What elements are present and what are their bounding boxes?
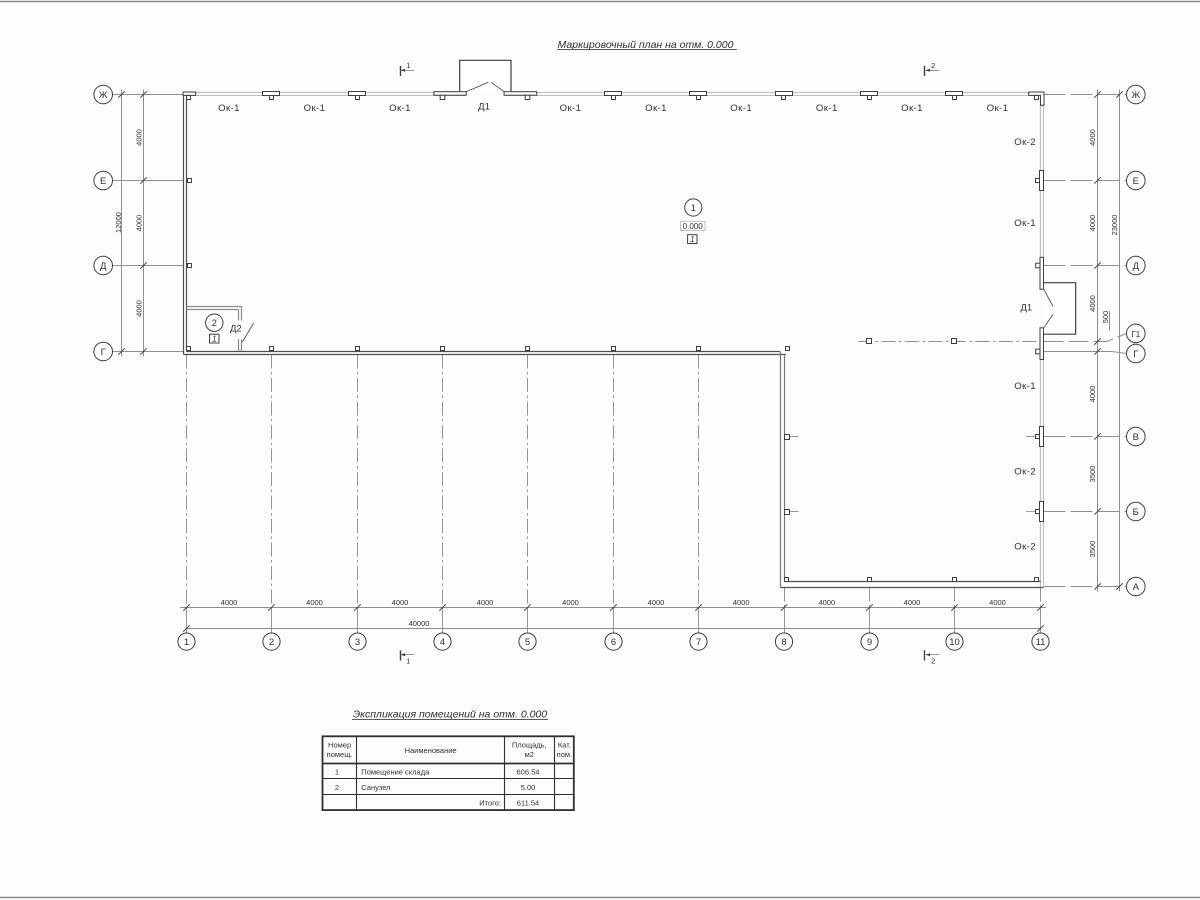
svg-text:4000: 4000 xyxy=(1088,129,1097,146)
svg-text:4000: 4000 xyxy=(134,215,143,232)
svg-text:Ок-1: Ок-1 xyxy=(560,103,582,114)
svg-text:2: 2 xyxy=(212,318,217,329)
svg-text:Наименование: Наименование xyxy=(405,746,457,755)
svg-text:4000: 4000 xyxy=(477,598,494,607)
svg-text:Д1: Д1 xyxy=(1020,303,1032,314)
svg-text:1: 1 xyxy=(335,767,339,776)
svg-text:3: 3 xyxy=(355,637,360,648)
svg-text:4000: 4000 xyxy=(1088,215,1097,232)
svg-text:1: 1 xyxy=(406,61,410,70)
svg-text:5.00: 5.00 xyxy=(521,783,536,792)
svg-text:Ок-1: Ок-1 xyxy=(218,103,240,114)
svg-text:Е: Е xyxy=(100,176,106,187)
svg-text:Ок-1: Ок-1 xyxy=(730,103,752,114)
svg-text:4: 4 xyxy=(440,637,445,648)
svg-text:Ж: Ж xyxy=(1131,90,1140,101)
svg-text:4000: 4000 xyxy=(221,598,238,607)
svg-text:Экспликация помещений на отм.: Экспликация помещений на отм. 0.000 xyxy=(353,709,547,721)
svg-text:Ж: Ж xyxy=(99,90,108,101)
svg-text:5: 5 xyxy=(525,637,530,648)
svg-text:Д2: Д2 xyxy=(230,324,242,335)
svg-text:9: 9 xyxy=(867,637,872,648)
svg-text:Д1: Д1 xyxy=(478,101,490,112)
svg-text:4000: 4000 xyxy=(818,598,835,607)
svg-text:4000: 4000 xyxy=(1088,386,1097,403)
svg-text:12000: 12000 xyxy=(114,212,123,233)
svg-text:4000: 4000 xyxy=(989,598,1006,607)
svg-text:Номер: Номер xyxy=(328,741,351,750)
svg-text:4000: 4000 xyxy=(648,598,665,607)
svg-text:1: 1 xyxy=(406,657,410,666)
svg-text:Д: Д xyxy=(1133,261,1140,272)
svg-text:Ок-1: Ок-1 xyxy=(1014,218,1036,229)
svg-text:1: 1 xyxy=(690,235,694,244)
svg-text:606.54: 606.54 xyxy=(517,767,540,776)
svg-text:В: В xyxy=(1133,432,1139,443)
svg-text:Д: Д xyxy=(100,261,107,272)
svg-text:10: 10 xyxy=(949,637,960,648)
svg-text:Ок-1: Ок-1 xyxy=(645,103,667,114)
svg-text:40000: 40000 xyxy=(409,619,430,628)
svg-text:3500: 3500 xyxy=(1088,466,1097,483)
svg-text:500: 500 xyxy=(1101,311,1110,324)
svg-text:Ок-2: Ок-2 xyxy=(1014,542,1036,553)
svg-text:611.54: 611.54 xyxy=(517,799,539,808)
svg-text:1: 1 xyxy=(184,637,189,648)
svg-text:1: 1 xyxy=(212,335,216,344)
svg-text:6: 6 xyxy=(611,637,616,648)
svg-text:1: 1 xyxy=(691,203,696,214)
svg-text:Итого:: Итого: xyxy=(479,799,501,808)
svg-text:2: 2 xyxy=(269,637,274,648)
svg-text:4000: 4000 xyxy=(134,300,143,317)
svg-text:Б: Б xyxy=(1133,507,1139,518)
svg-text:Площадь,: Площадь, xyxy=(512,741,547,750)
svg-text:2: 2 xyxy=(335,783,339,792)
svg-text:помещ.: помещ. xyxy=(327,750,353,759)
svg-text:11: 11 xyxy=(1036,637,1046,648)
svg-text:4000: 4000 xyxy=(562,598,579,607)
svg-text:4000: 4000 xyxy=(392,598,409,607)
svg-text:2: 2 xyxy=(931,61,935,70)
svg-text:4000: 4000 xyxy=(306,598,323,607)
svg-text:Е: Е xyxy=(1133,176,1139,187)
svg-text:Санузел: Санузел xyxy=(361,783,390,792)
svg-text:Помещение склада: Помещение склада xyxy=(361,767,430,776)
svg-text:м2: м2 xyxy=(525,750,534,759)
svg-text:Ок-2: Ок-2 xyxy=(1014,467,1036,478)
svg-text:пом.: пом. xyxy=(557,750,572,759)
svg-text:Г: Г xyxy=(101,347,106,358)
svg-text:4000: 4000 xyxy=(1088,295,1097,312)
svg-text:Ок-1: Ок-1 xyxy=(816,103,838,114)
svg-text:А: А xyxy=(1133,582,1140,593)
svg-text:Г1: Г1 xyxy=(1131,330,1140,339)
svg-text:Ок-2: Ок-2 xyxy=(1014,137,1036,148)
svg-text:23000: 23000 xyxy=(1110,215,1119,236)
svg-text:Ок-1: Ок-1 xyxy=(901,103,923,114)
svg-text:4000: 4000 xyxy=(733,598,750,607)
svg-text:3500: 3500 xyxy=(1088,541,1097,558)
svg-text:7: 7 xyxy=(696,637,701,648)
svg-text:Ок-1: Ок-1 xyxy=(1014,381,1036,392)
svg-text:Кат.: Кат. xyxy=(558,741,571,750)
svg-text:Г: Г xyxy=(1133,349,1138,360)
svg-text:Ок-1: Ок-1 xyxy=(987,103,1009,114)
svg-text:8: 8 xyxy=(781,637,786,648)
svg-text:Ок-1: Ок-1 xyxy=(389,103,411,114)
svg-text:2: 2 xyxy=(931,657,935,666)
svg-text:4000: 4000 xyxy=(904,598,921,607)
svg-text:Ок-1: Ок-1 xyxy=(304,103,326,114)
svg-text:0.000: 0.000 xyxy=(683,222,704,231)
svg-text:4000: 4000 xyxy=(134,129,143,146)
